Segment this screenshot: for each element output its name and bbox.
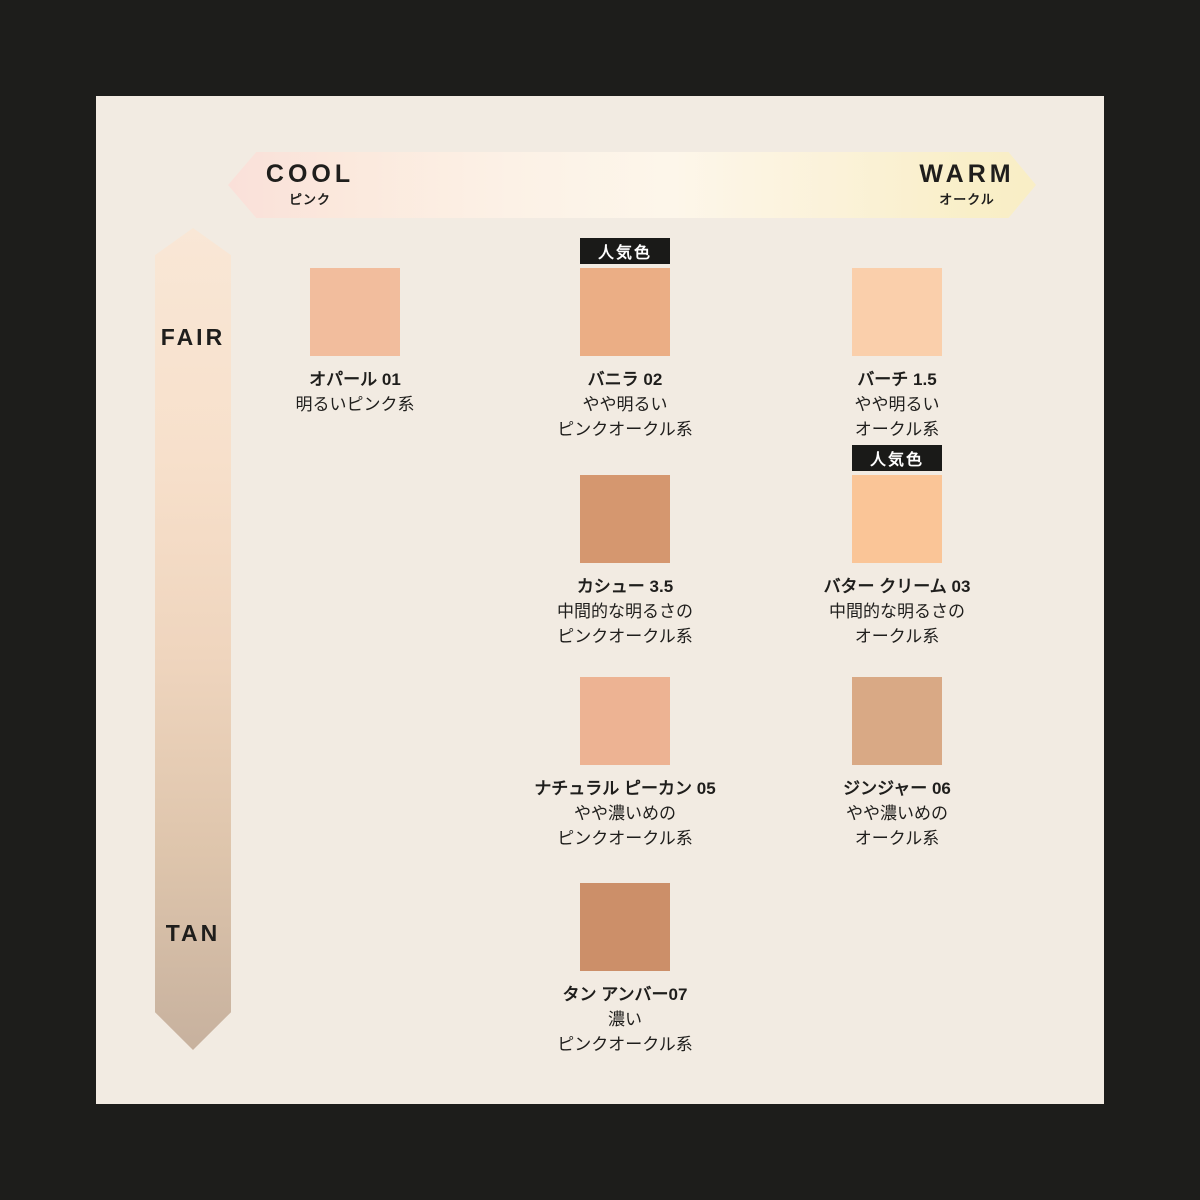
warm-axis-label: WARM オークル bbox=[897, 162, 1037, 206]
popular-badge: 人気色 bbox=[580, 238, 670, 264]
cool-sublabel-text: ピンク bbox=[240, 193, 380, 206]
shade-swatch bbox=[310, 268, 400, 356]
shade-description-line: 中間的な明るさの bbox=[829, 599, 965, 625]
shade-description-line: 濃い bbox=[608, 1007, 642, 1033]
shade-name: バター クリーム 03 bbox=[824, 576, 971, 599]
shade-description-line: やや濃いめの bbox=[574, 801, 676, 827]
shade-cell: 人気色バニラ 02やや明るいピンクオークル系 bbox=[505, 238, 745, 443]
shade-cell: 人気色バーチ 1.5やや明るいオークル系 bbox=[777, 238, 1017, 443]
shade-description-line: オークル系 bbox=[855, 826, 940, 852]
shade-description-line: ピンクオークル系 bbox=[557, 826, 693, 852]
shade-swatch bbox=[852, 475, 942, 563]
cool-label-text: COOL bbox=[240, 162, 380, 187]
cool-axis-label: COOL ピンク bbox=[240, 162, 380, 206]
warm-sublabel-text: オークル bbox=[897, 193, 1037, 206]
shade-cell: 人気色バター クリーム 03中間的な明るさのオークル系 bbox=[777, 445, 1017, 650]
shade-description-line: 明るいピンク系 bbox=[296, 392, 415, 418]
shade-name: ナチュラル ピーカン 05 bbox=[534, 778, 715, 801]
shade-name: バーチ 1.5 bbox=[857, 369, 936, 392]
shade-description-line: やや明るい bbox=[855, 392, 940, 418]
shade-description-line: ピンクオークル系 bbox=[557, 1032, 693, 1058]
warm-label-text: WARM bbox=[897, 162, 1037, 187]
shade-swatch bbox=[580, 268, 670, 356]
shade-swatch bbox=[580, 677, 670, 765]
shade-name: タン アンバー07 bbox=[563, 984, 688, 1007]
shade-description-line: やや濃いめの bbox=[846, 801, 948, 827]
shade-swatch bbox=[852, 677, 942, 765]
shade-description-line: ピンクオークル系 bbox=[557, 417, 693, 443]
popular-badge: 人気色 bbox=[852, 445, 942, 471]
shade-swatch bbox=[580, 475, 670, 563]
shade-cell: 人気色ジンジャー 06やや濃いめのオークル系 bbox=[777, 647, 1017, 852]
shade-cell: 人気色カシュー 3.5中間的な明るさのピンクオークル系 bbox=[505, 445, 745, 650]
shade-description-line: 中間的な明るさの bbox=[557, 599, 693, 625]
shade-name: オパール 01 bbox=[309, 369, 401, 392]
tan-axis-label: TAN bbox=[155, 922, 231, 945]
shade-name: カシュー 3.5 bbox=[577, 576, 673, 599]
shade-cell: 人気色タン アンバー07濃いピンクオークル系 bbox=[505, 853, 745, 1058]
shade-cell: 人気色オパール 01明るいピンク系 bbox=[235, 238, 475, 417]
shade-name: バニラ 02 bbox=[588, 369, 663, 392]
shade-description-line: オークル系 bbox=[855, 417, 940, 443]
shade-name: ジンジャー 06 bbox=[843, 778, 951, 801]
shade-cell: 人気色ナチュラル ピーカン 05やや濃いめのピンクオークル系 bbox=[505, 647, 745, 852]
shade-description-line: やや明るい bbox=[583, 392, 668, 418]
fair-axis-label: FAIR bbox=[155, 326, 231, 349]
shade-swatch bbox=[852, 268, 942, 356]
shade-swatch bbox=[580, 883, 670, 971]
shade-chart-page: { "page": { "background": "#1D1D1B", "pa… bbox=[0, 0, 1200, 1200]
